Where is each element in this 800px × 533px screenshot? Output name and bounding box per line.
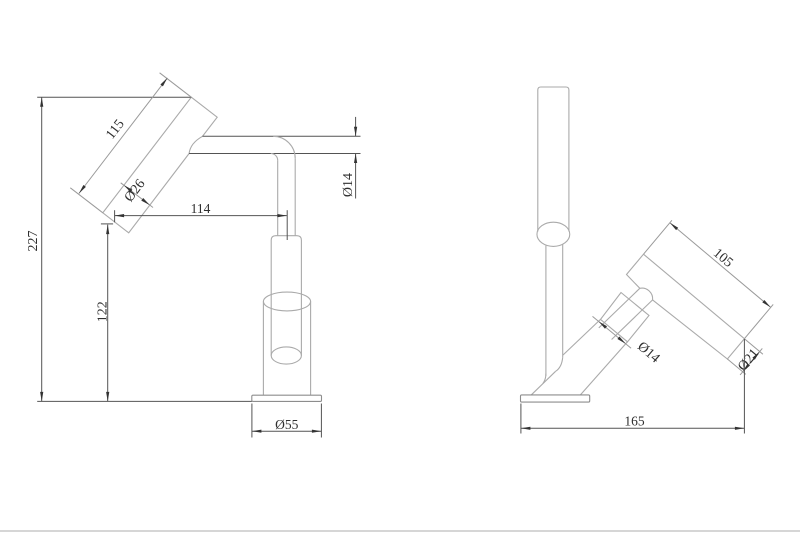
svg-text:227: 227 xyxy=(26,231,41,252)
svg-text:114: 114 xyxy=(191,201,211,216)
svg-text:115: 115 xyxy=(103,117,127,142)
svg-text:Ø14: Ø14 xyxy=(634,339,662,366)
svg-text:122: 122 xyxy=(96,301,111,322)
svg-text:105: 105 xyxy=(710,246,736,271)
svg-text:Ø55: Ø55 xyxy=(275,417,298,432)
svg-text:165: 165 xyxy=(624,414,645,429)
svg-text:Ø14: Ø14 xyxy=(341,173,356,197)
